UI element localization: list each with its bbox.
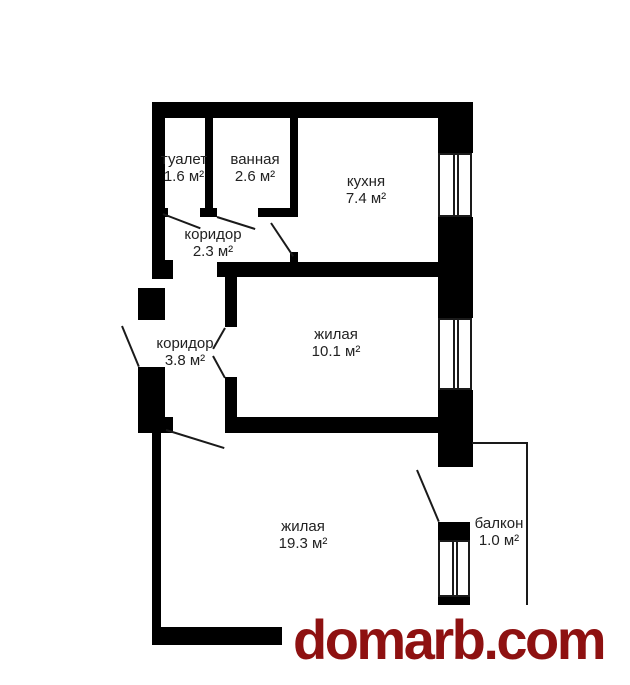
room-area: 1.0 м² [475, 532, 524, 549]
room-label-balcony: балкон 1.0 м² [475, 515, 524, 549]
room-name: коридор [184, 226, 241, 243]
room-name: балкон [475, 515, 524, 532]
window-mullion [453, 320, 455, 388]
balcony-window [438, 540, 470, 597]
window-mullion [457, 155, 459, 215]
room-label-living-small: жилая 10.1 м² [312, 326, 361, 360]
floor-plan: туалет 1.6 м² ванная 2.6 м² кухня 7.4 м²… [0, 0, 630, 685]
room-name: жилая [279, 518, 328, 535]
room-area: 7.4 м² [346, 190, 386, 207]
corridor-living-door-swing-upper [212, 328, 226, 350]
wall-left-upper [152, 102, 165, 279]
room-label-corridor-small: коридор 2.3 м² [184, 226, 241, 260]
window-mullion [456, 542, 458, 595]
window-mullion [452, 542, 454, 595]
living-large-door-swing [166, 429, 225, 449]
balcony-outline-top [472, 442, 528, 444]
room-area: 2.6 м² [230, 168, 279, 185]
room-area: 19.3 м² [279, 535, 328, 552]
wall-bath-kitchen-divider [290, 118, 298, 217]
entrance-door-swing [121, 326, 140, 367]
living-small-window [438, 318, 472, 390]
wall-bath-bottom-stub-left [200, 208, 217, 217]
wall-top [152, 102, 473, 118]
balcony-outline-right [526, 442, 528, 605]
room-name: ванная [230, 151, 279, 168]
room-name: жилая [312, 326, 361, 343]
wall-left-block-lower [138, 367, 165, 417]
wall-left-lower [152, 433, 161, 645]
room-label-corridor-large: коридор 3.8 м² [156, 335, 213, 369]
room-name: туалет [161, 151, 207, 168]
wall-bath-bottom-stub-right [258, 208, 298, 217]
room-name: коридор [156, 335, 213, 352]
wall-corridor-living-lower [225, 377, 237, 417]
room-label-living-large: жилая 19.3 м² [279, 518, 328, 552]
wall-bottom [152, 627, 282, 645]
room-area: 2.3 м² [184, 243, 241, 260]
wall-balcony-window-stub-bottom [438, 597, 470, 605]
kitchen-window [438, 153, 472, 217]
corridor-divider-stub-left [165, 260, 173, 279]
room-area: 3.8 м² [156, 352, 213, 369]
room-label-bathroom: ванная 2.6 м² [230, 151, 279, 185]
wall-right-lower [438, 390, 473, 467]
balcony-door-swing [416, 470, 440, 522]
wall-right-mid [438, 217, 473, 318]
wall-right-upper [438, 102, 473, 153]
wall-horizontal-mid [217, 262, 438, 277]
window-mullion [453, 155, 455, 215]
wall-corridor-living-upper [225, 277, 237, 327]
room-label-toilet: туалет 1.6 м² [161, 151, 207, 185]
window-mullion [457, 320, 459, 388]
kitchen-door-swing [270, 222, 294, 256]
corridor-living-door-swing-lower [212, 356, 226, 379]
wall-left-block-upper [138, 288, 165, 320]
room-name: кухня [346, 173, 386, 190]
watermark: domarb.com [293, 612, 604, 668]
room-area: 10.1 м² [312, 343, 361, 360]
room-area: 1.6 м² [161, 168, 207, 185]
wall-balcony-window-stub-top [438, 522, 470, 540]
room-label-kitchen: кухня 7.4 м² [346, 173, 386, 207]
wall-living-small-bottom [225, 417, 438, 433]
